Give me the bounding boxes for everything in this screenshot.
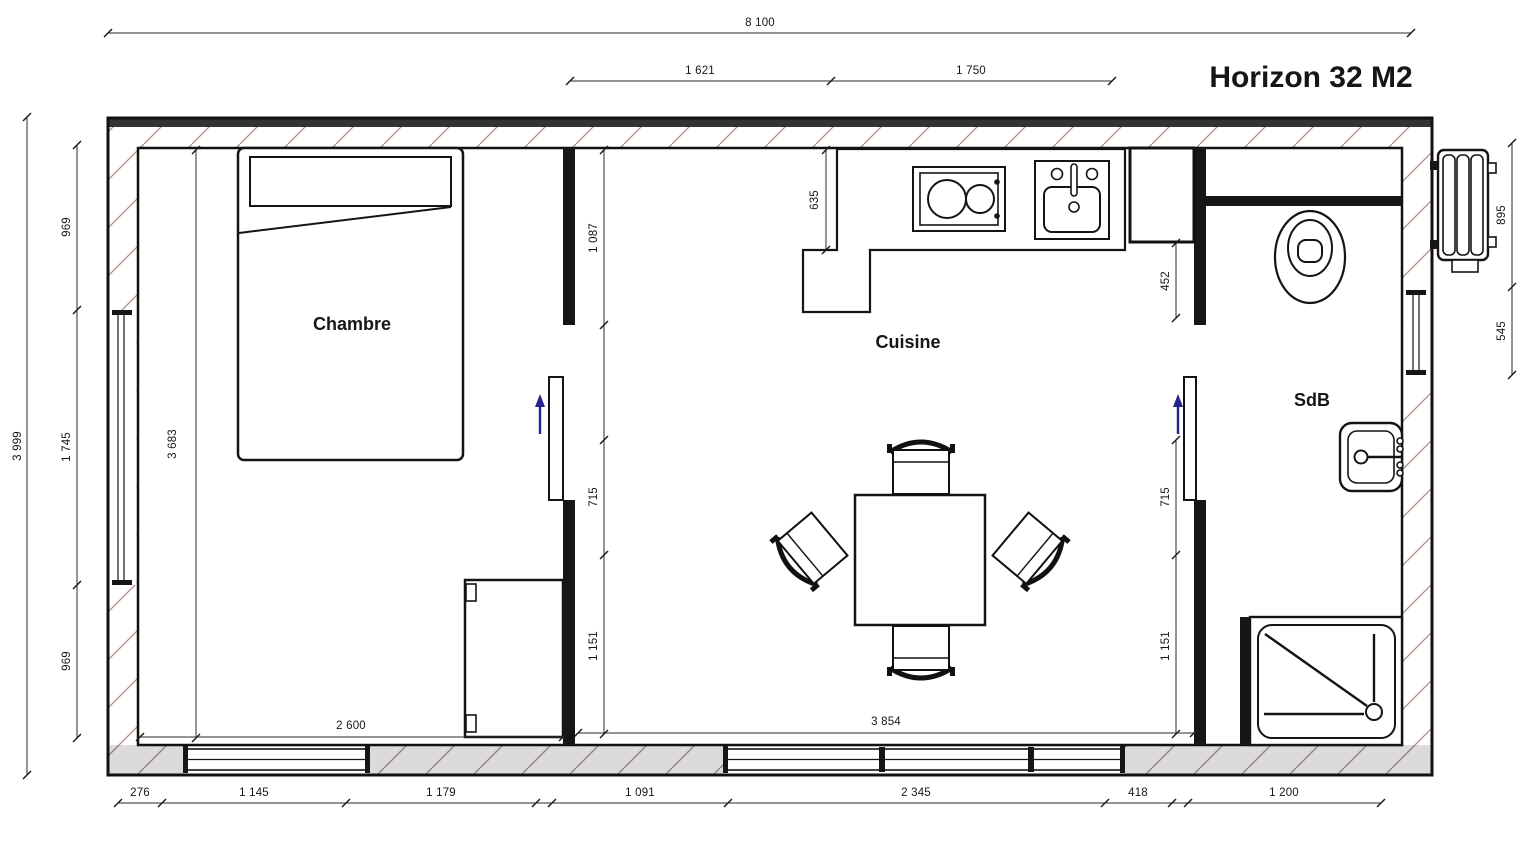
plan-title: Horizon 32 M2 (1209, 61, 1412, 94)
door-swing-arrow-icon (535, 394, 545, 407)
shower-wall-stub (1240, 617, 1250, 745)
tall-cabinet (1130, 148, 1194, 242)
water-heater-icon (1430, 150, 1496, 272)
stove-icon (913, 167, 1005, 231)
dim-overall-height: 3 999 (12, 431, 24, 461)
kitchen-sink-icon (1035, 161, 1109, 239)
dim-bottom-5: 2 345 (901, 787, 931, 799)
window-bedroom (183, 746, 370, 774)
floor-plan: 8 100 1 621 1 750 3 999 969 1 745 969 89… (0, 0, 1538, 850)
chair-bottom (887, 626, 955, 678)
dining-table (855, 495, 985, 625)
dim-bottom-2: 1 145 (239, 787, 269, 799)
dim-kitchen-right-1: 452 (1160, 271, 1172, 291)
dim-kitchen-left-2: 715 (588, 487, 600, 507)
bed-pillow (250, 157, 451, 206)
door-swing-arrow-icon (1173, 394, 1183, 407)
dim-bottom-7: 1 200 (1269, 787, 1299, 799)
dim-bottom-6: 418 (1128, 787, 1148, 799)
bathroom-sink-icon (1340, 423, 1403, 491)
room-label-bedroom: Chambre (313, 314, 391, 334)
shower-icon (1250, 617, 1402, 745)
door-leaf (1184, 377, 1196, 500)
toilet-icon (1275, 211, 1345, 303)
bed (238, 148, 463, 460)
room-label-bathroom: SdB (1294, 390, 1330, 410)
door-bedroom (535, 377, 563, 500)
dim-top-2: 1 750 (956, 65, 986, 77)
dim-kitchen-width: 3 854 (871, 716, 901, 728)
dim-top-1: 1 621 (685, 65, 715, 77)
chair-right (989, 508, 1073, 594)
dim-kitchen-right-3: 1 151 (1160, 631, 1172, 661)
dim-left-1: 969 (61, 217, 73, 237)
dim-bottom-1: 276 (130, 787, 150, 799)
dim-bedroom-height: 3 683 (167, 429, 179, 459)
dim-left-2: 1 745 (61, 432, 73, 462)
window-left (110, 310, 137, 585)
dim-kitchen-left-3: 1 151 (588, 631, 600, 661)
window-right (1404, 290, 1431, 375)
wardrobe (465, 580, 563, 737)
dim-kitchen-left-1: 1 087 (588, 223, 600, 253)
chair-left (768, 508, 852, 594)
dim-bottom-4: 1 091 (625, 787, 655, 799)
chair-top (887, 442, 955, 494)
bathroom-top-wall (1206, 196, 1402, 206)
dim-kitchen-right-2: 715 (1160, 487, 1172, 507)
room-label-kitchen: Cuisine (875, 332, 940, 352)
partition-bedroom-wall (563, 148, 575, 745)
dining-set (768, 442, 1072, 678)
dim-left-3: 969 (61, 651, 73, 671)
floor-plan-page: 8 100 1 621 1 750 3 999 969 1 745 969 89… (0, 0, 1538, 850)
dim-overall-width: 8 100 (745, 17, 775, 29)
dim-right-1: 895 (1496, 205, 1508, 225)
dim-right-2: 545 (1496, 321, 1508, 341)
dim-counter-depth: 635 (809, 190, 821, 210)
window-kitchen-bay (723, 746, 1125, 774)
door-leaf (549, 377, 563, 500)
dim-bedroom-width: 2 600 (336, 720, 366, 732)
dim-bottom-3: 1 179 (426, 787, 456, 799)
